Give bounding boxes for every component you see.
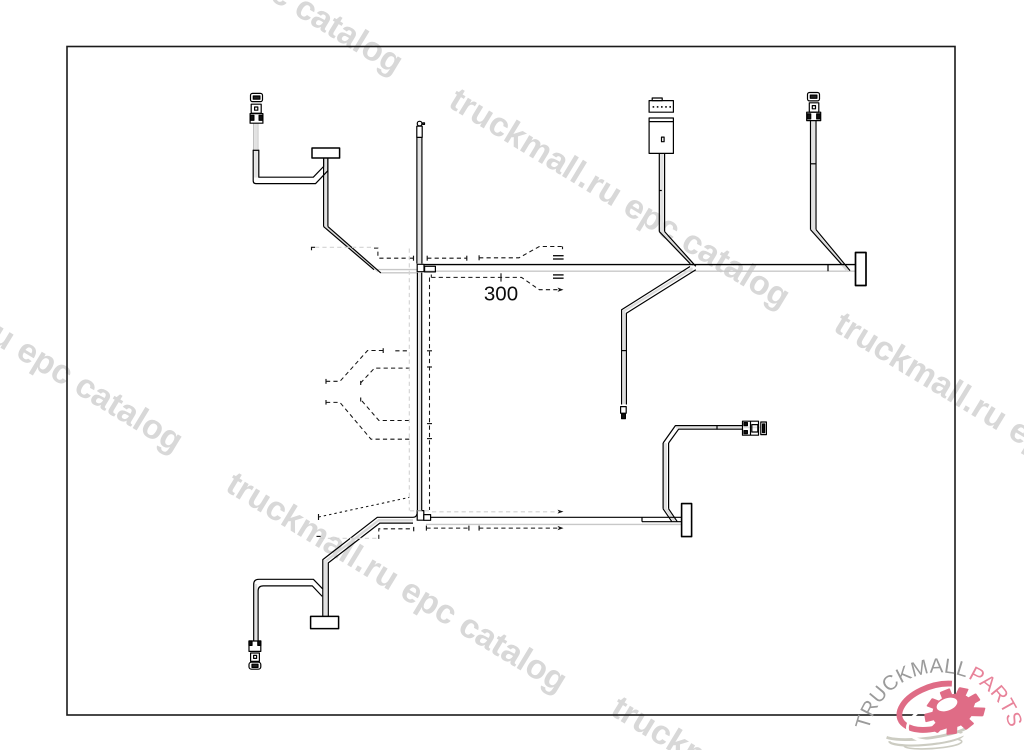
svg-text:300: 300 [484,283,518,306]
